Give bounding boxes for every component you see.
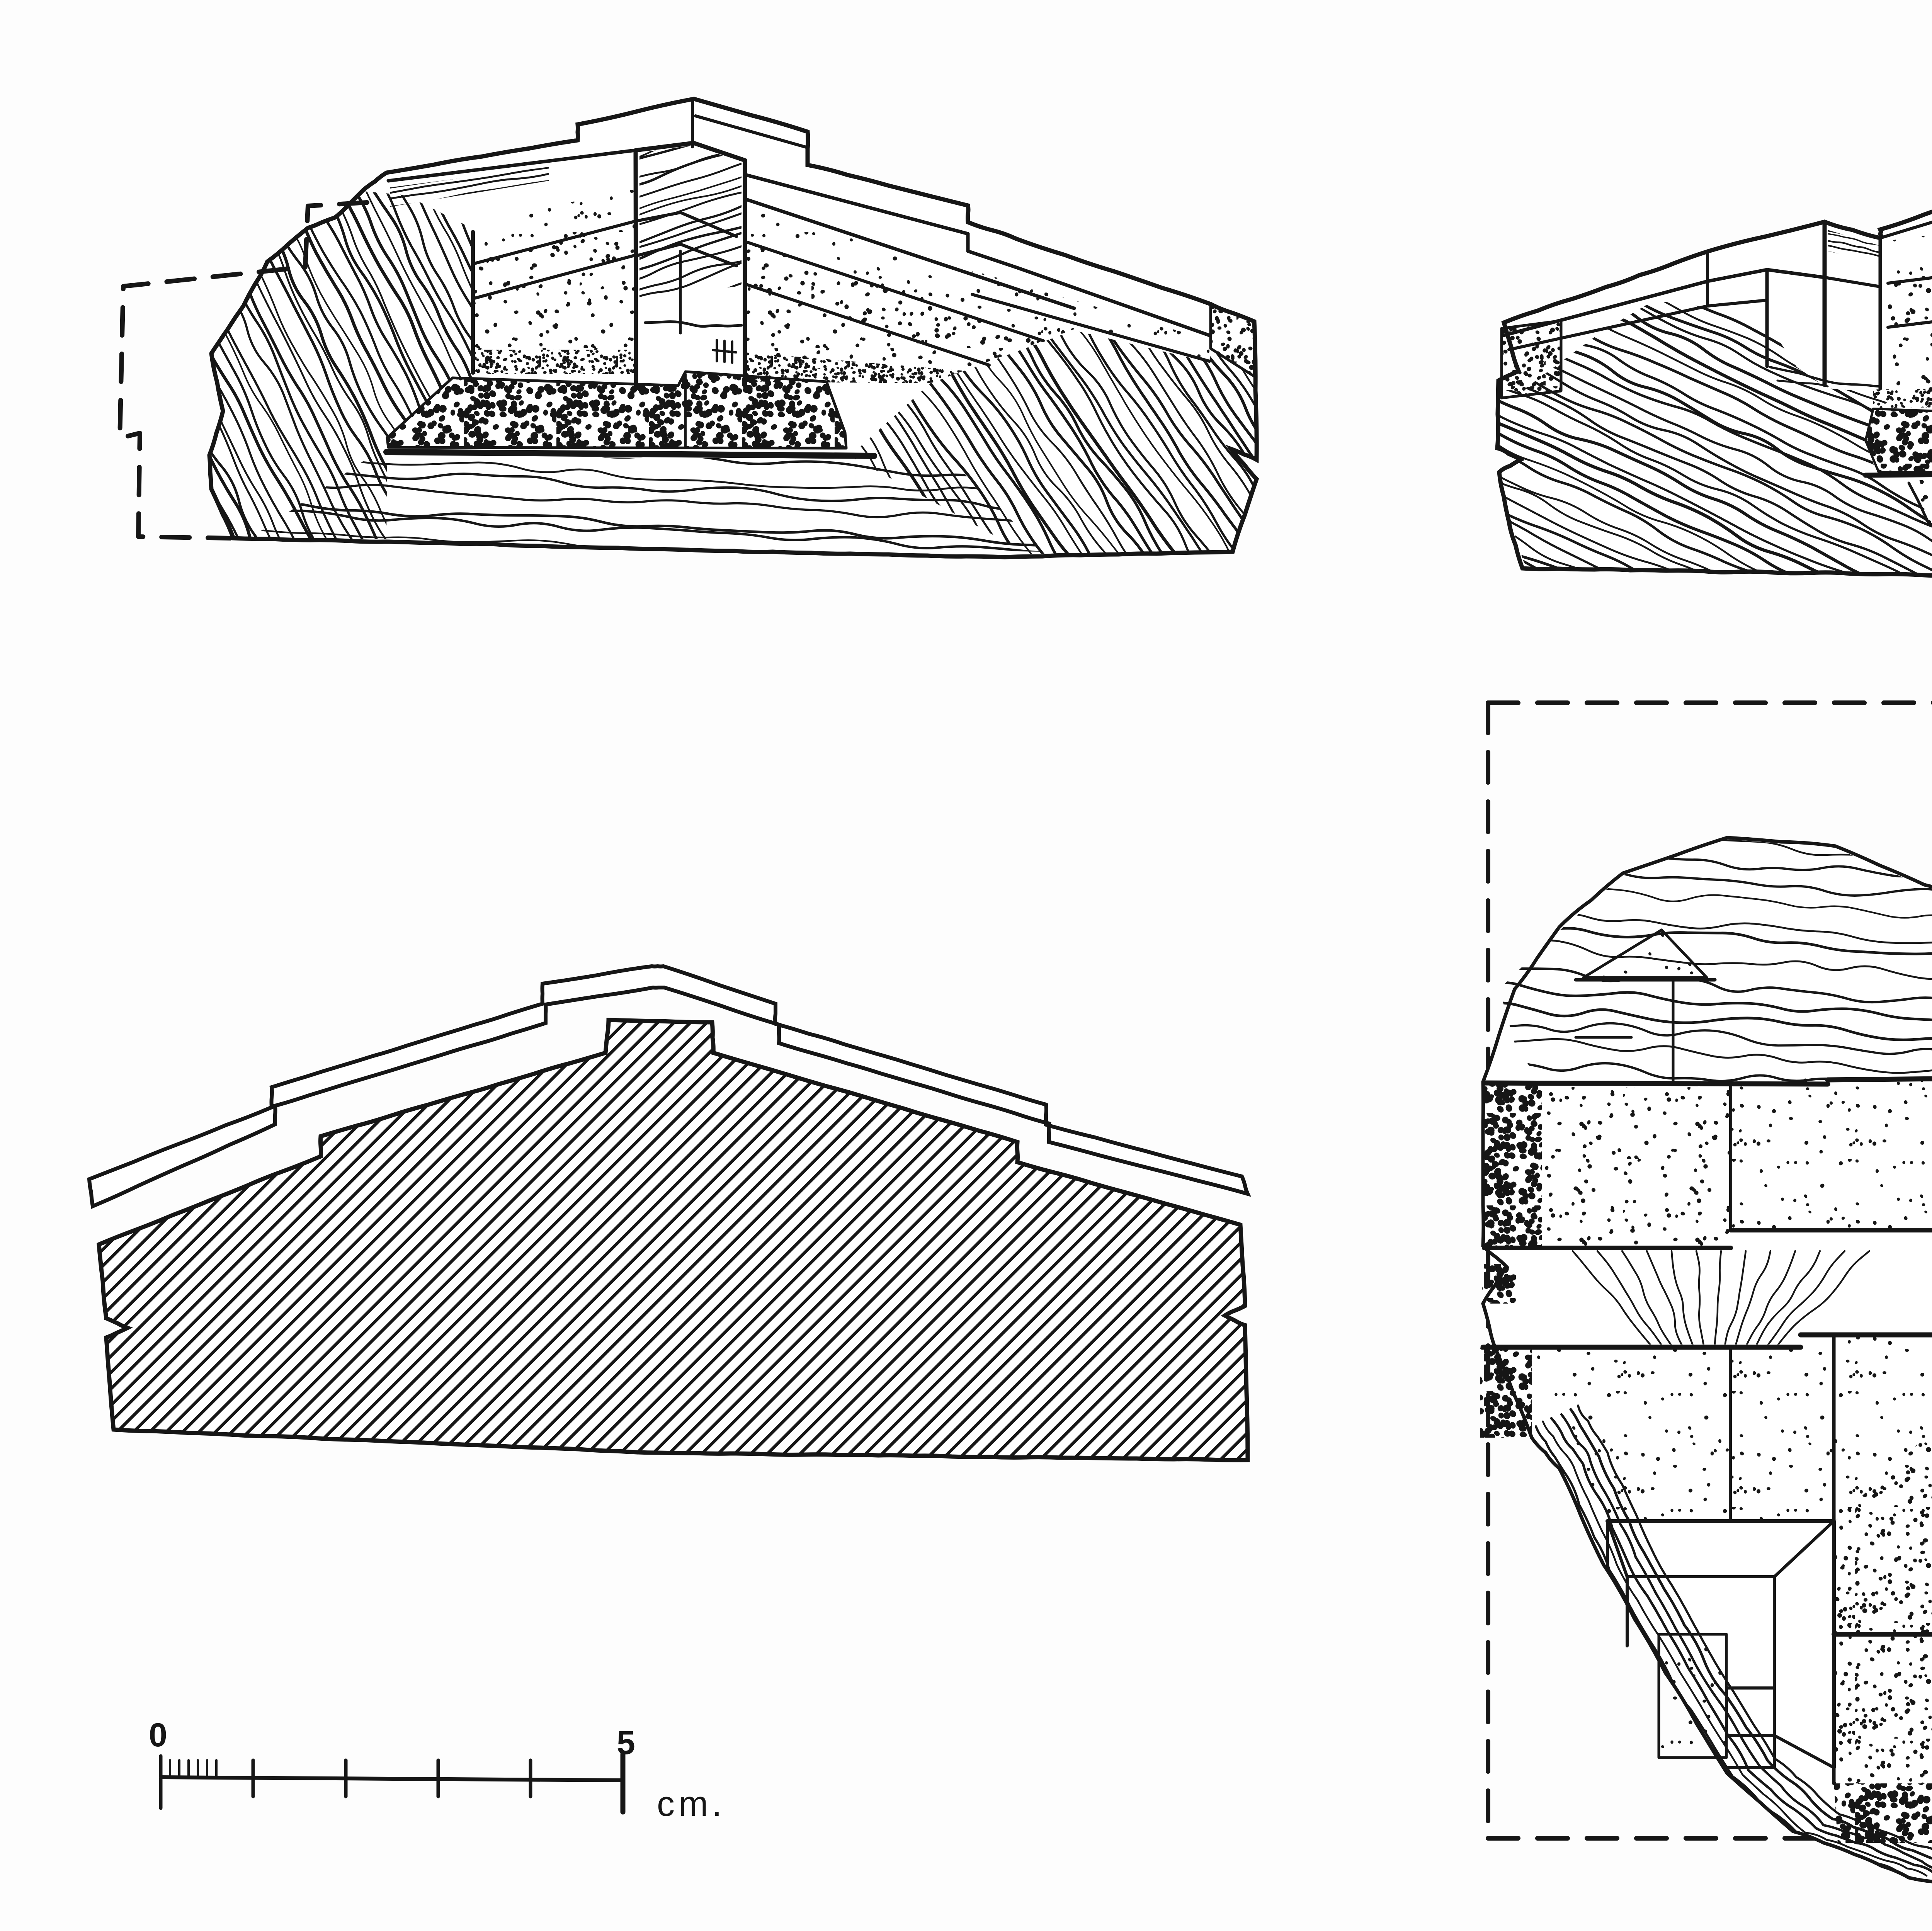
svg-text:5: 5: [617, 1724, 635, 1761]
svg-text:0: 0: [149, 1717, 167, 1754]
svg-text:cm.: cm.: [657, 1784, 726, 1824]
